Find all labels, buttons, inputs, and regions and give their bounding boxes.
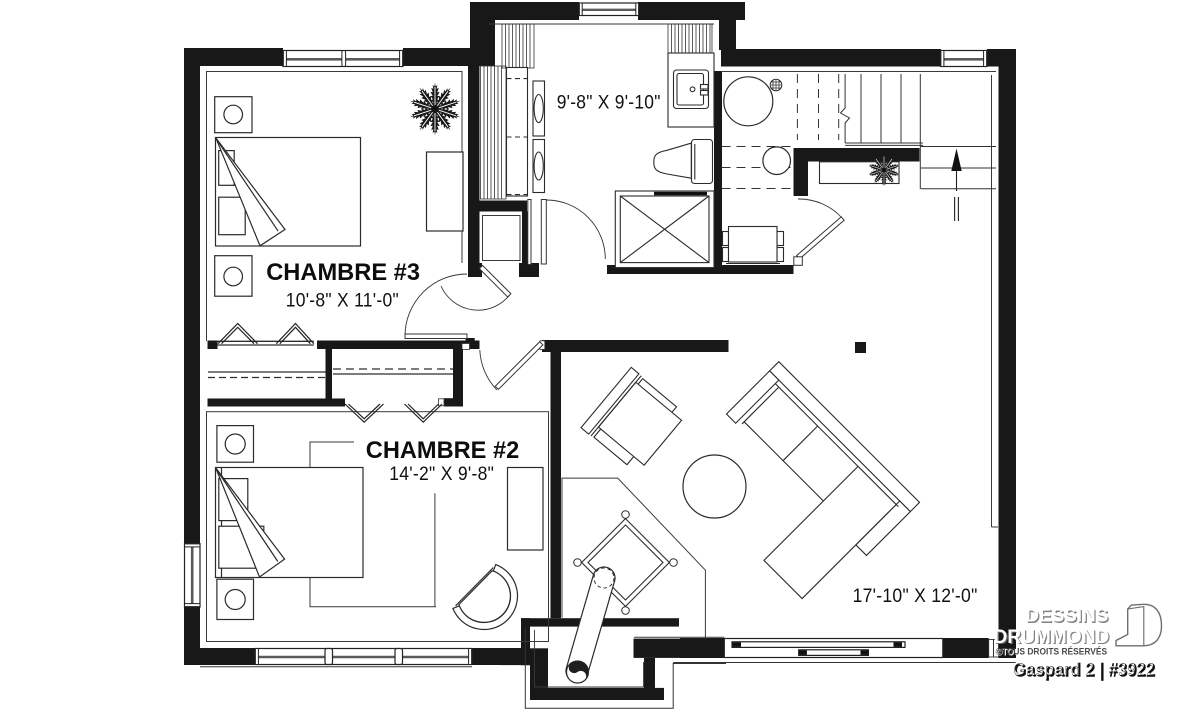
svg-text:DESSINS: DESSINS bbox=[1025, 605, 1108, 626]
svg-text:14'-2" X 9'-8": 14'-2" X 9'-8" bbox=[389, 463, 494, 485]
svg-text:DRUMMOND: DRUMMOND bbox=[994, 626, 1110, 648]
svg-text:©TOUS DROITS RÉSERVÉS: ©TOUS DROITS RÉSERVÉS bbox=[996, 647, 1108, 657]
svg-text:10'-8" X 11'-0": 10'-8" X 11'-0" bbox=[286, 290, 399, 312]
svg-text:17'-10" X 12'-0": 17'-10" X 12'-0" bbox=[853, 585, 978, 607]
svg-text:Gaspard 2 | #3922: Gaspard 2 | #3922 bbox=[1014, 660, 1156, 681]
svg-text:CHAMBRE #3: CHAMBRE #3 bbox=[266, 259, 420, 286]
svg-text:CHAMBRE #2: CHAMBRE #2 bbox=[366, 437, 519, 464]
svg-text:9'-8" X 9'-10": 9'-8" X 9'-10" bbox=[557, 92, 661, 114]
